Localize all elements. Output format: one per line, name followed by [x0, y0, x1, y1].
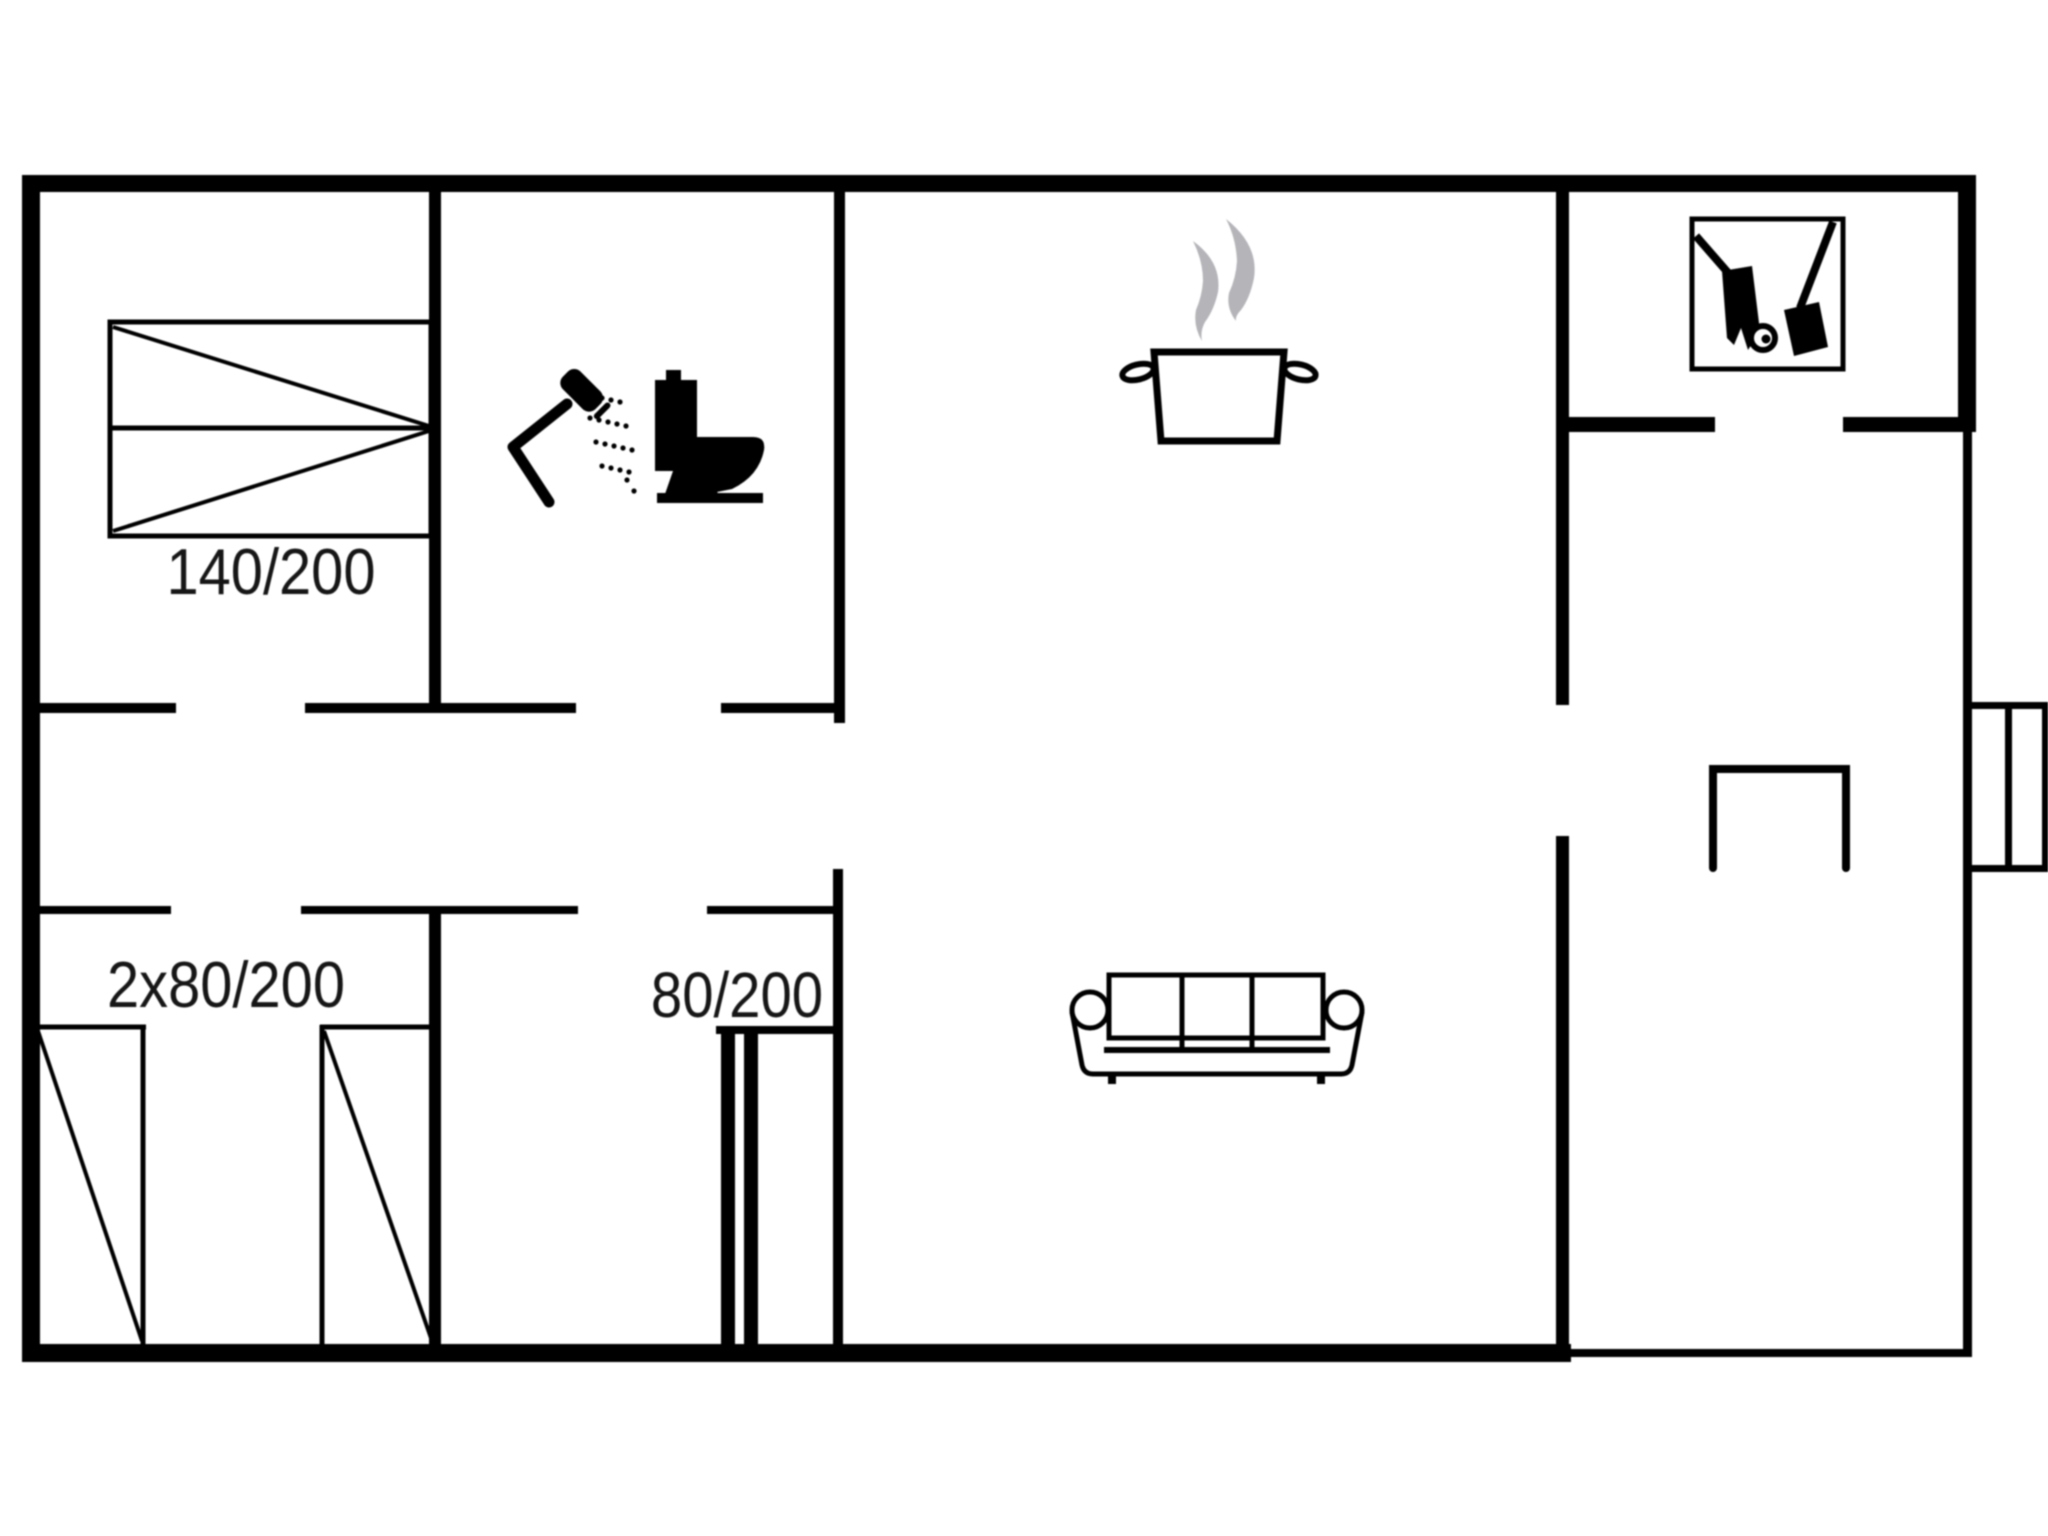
svg-text:140/200: 140/200 [166, 536, 375, 609]
svg-text:2x80/200: 2x80/200 [107, 949, 345, 1022]
svg-text:80/200: 80/200 [651, 959, 823, 1031]
